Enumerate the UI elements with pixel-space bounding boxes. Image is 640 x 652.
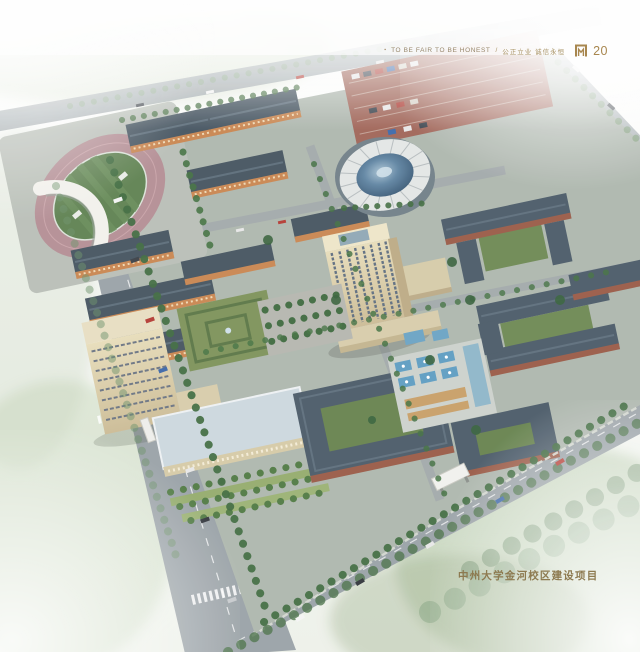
fog-overlay (0, 0, 640, 652)
page-number: 20 (593, 44, 608, 58)
aerial-rendering-canvas (0, 0, 640, 652)
company-monogram-icon (574, 43, 588, 58)
slogan-english: TO BE FAIR TO BE HONEST (391, 47, 490, 54)
slogan-separator: / (495, 47, 497, 54)
slogan-bullet-icon: ▪ (384, 48, 386, 53)
page-header: ▪ TO BE FAIR TO BE HONEST / 公正立业 诚信永恒 20 (384, 43, 608, 58)
campus-rendering-page: ▪ TO BE FAIR TO BE HONEST / 公正立业 诚信永恒 20… (0, 0, 640, 652)
project-caption: 中州大学金河校区建设项目 (458, 568, 598, 583)
slogan-chinese: 公正立业 诚信永恒 (502, 46, 565, 56)
